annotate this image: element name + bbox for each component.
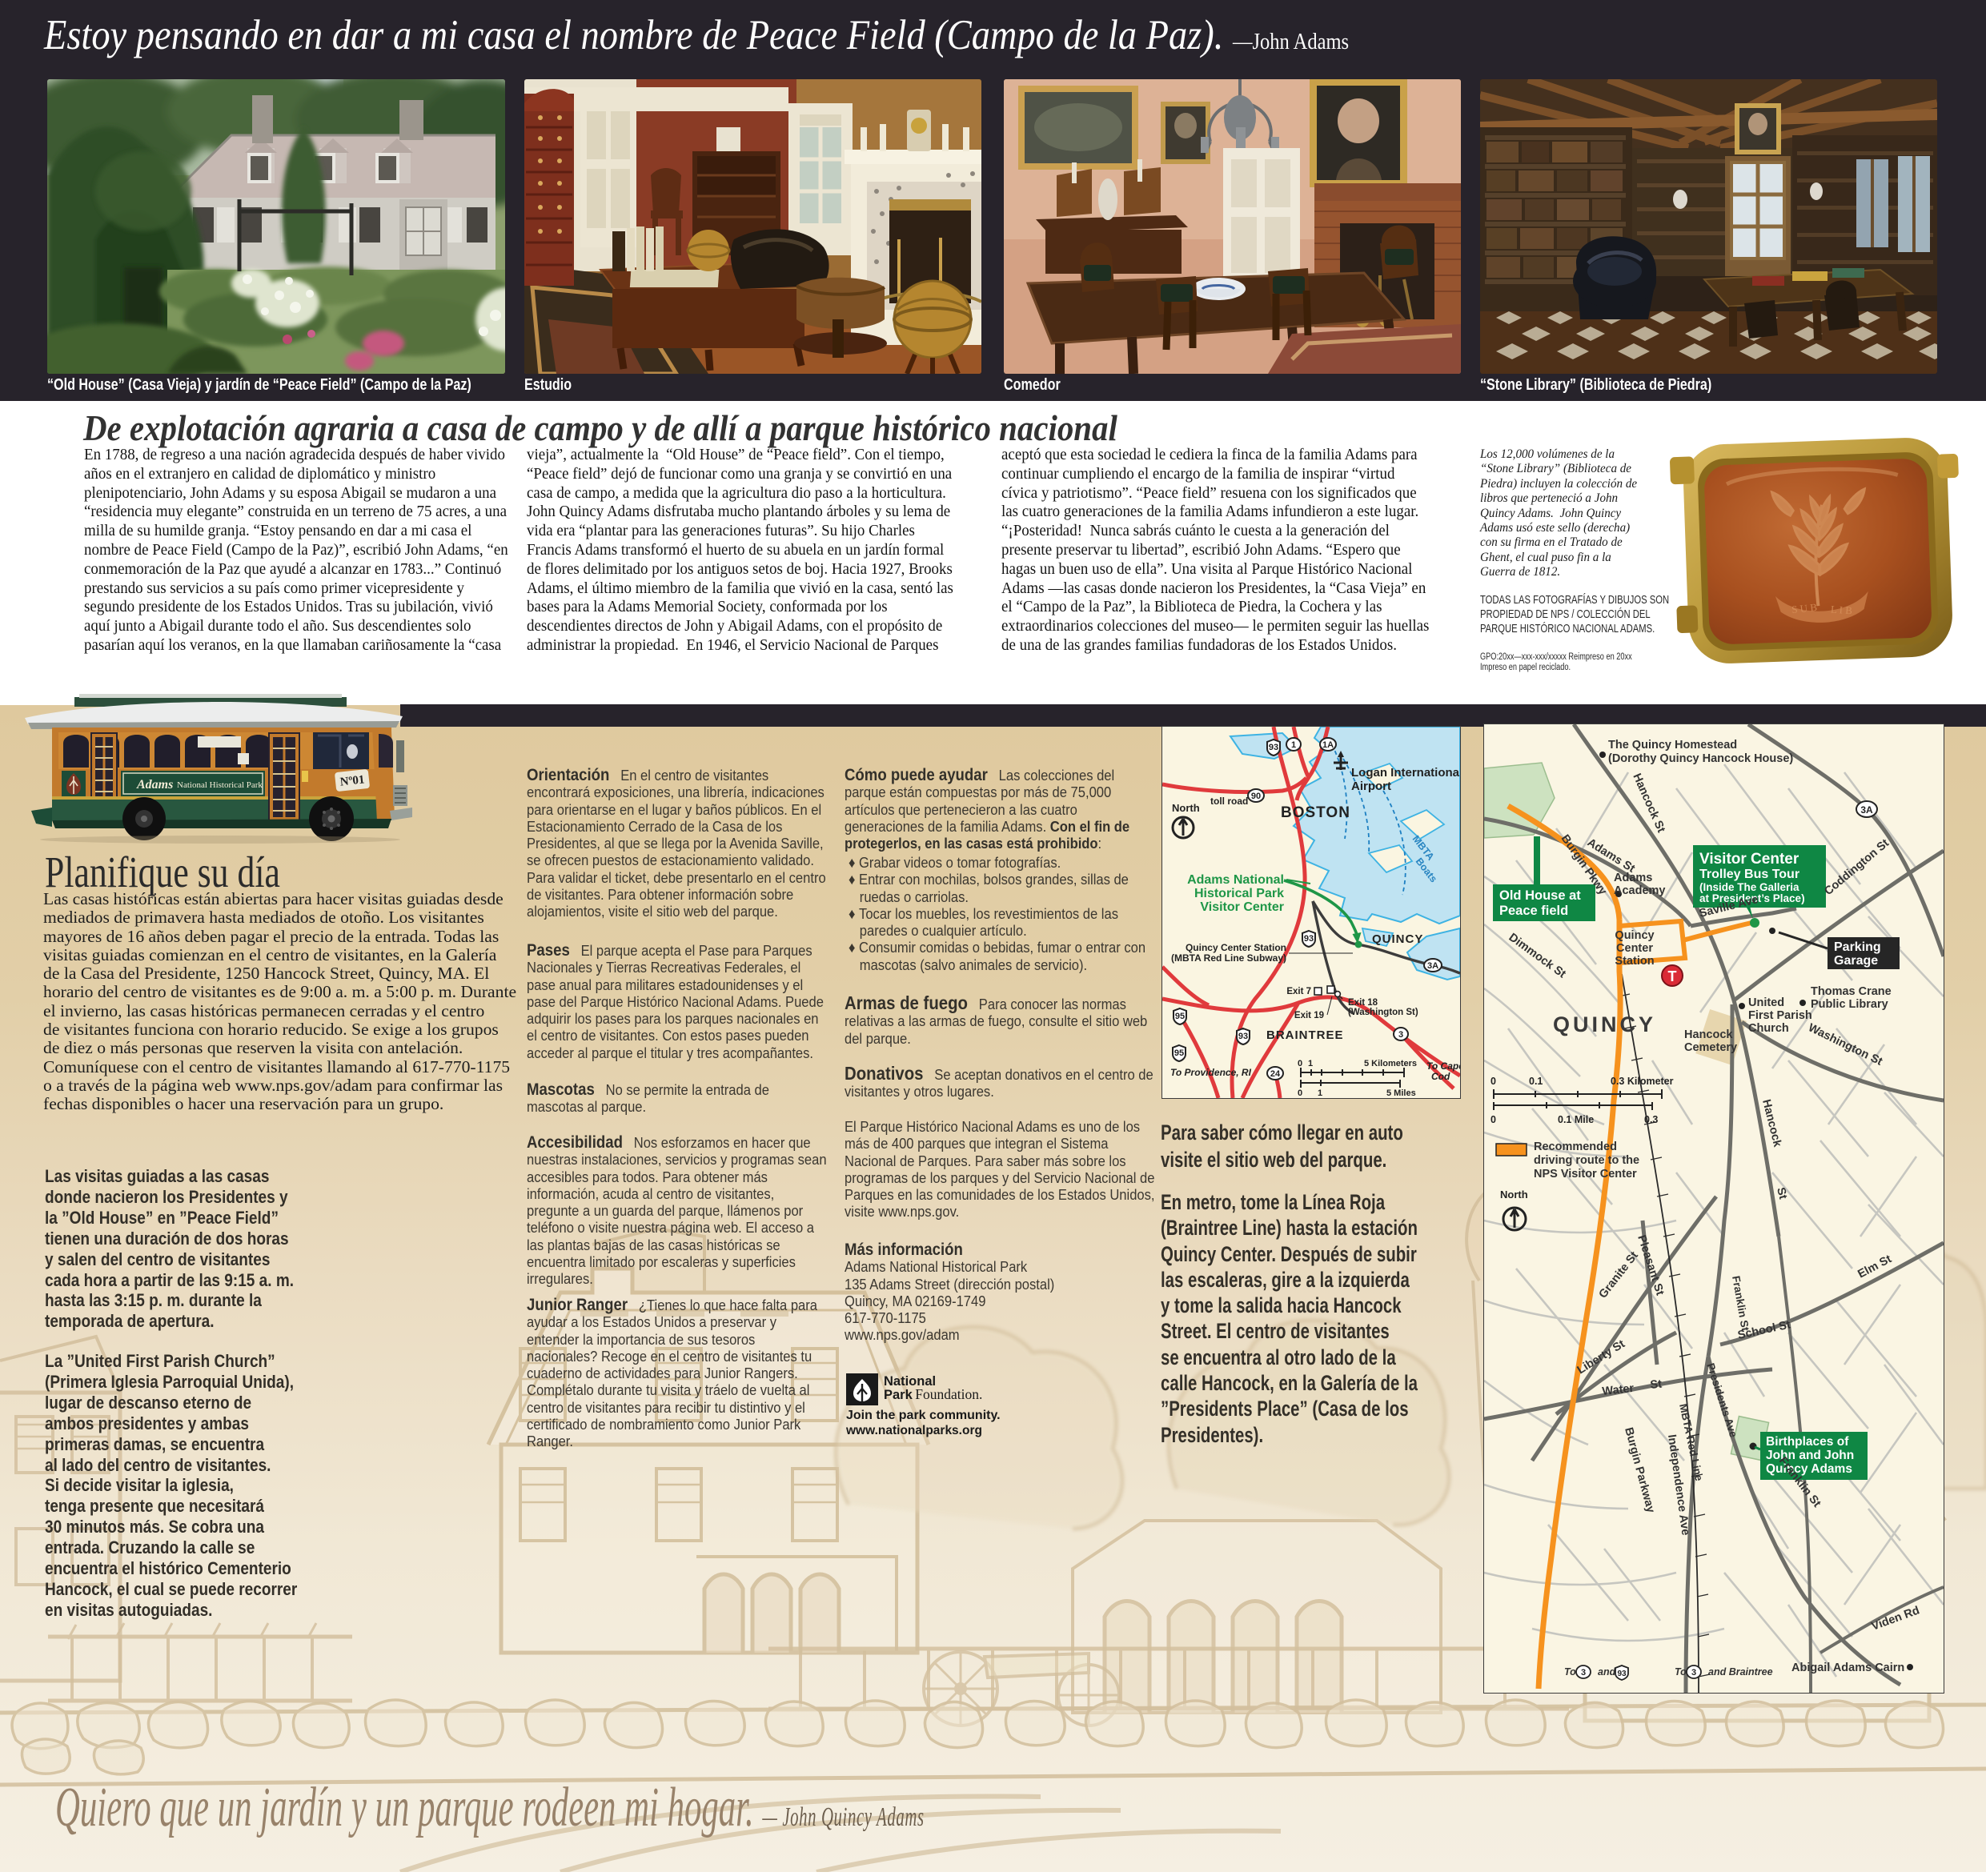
svg-text:First Parish: First Parish [1748, 1009, 1812, 1022]
svg-text:1: 1 [1318, 1088, 1322, 1098]
svg-text:Garage: Garage [1834, 954, 1878, 968]
svg-text:T: T [1668, 968, 1677, 984]
svg-text:93: 93 [1617, 1670, 1627, 1678]
svg-text:Trolley Bus Tour: Trolley Bus Tour [1699, 868, 1799, 881]
svg-text:93: 93 [1238, 1032, 1248, 1041]
svg-text:Exit 18: Exit 18 [1348, 998, 1378, 1008]
svg-text:BOSTON: BOSTON [1281, 804, 1350, 821]
svg-text:Cemetery: Cemetery [1684, 1041, 1737, 1054]
svg-text:L I B: L I B [1831, 603, 1853, 617]
svg-text:and Braintree: and Braintree [1708, 1666, 1773, 1678]
svg-text:The Quincy Homestead: The Quincy Homestead [1608, 739, 1737, 752]
svg-text:Logan International: Logan International [1351, 766, 1460, 780]
svg-text:5 Miles: 5 Miles [1386, 1088, 1416, 1098]
svg-text:To Providence, RI: To Providence, RI [1170, 1067, 1252, 1078]
svg-text:North: North [1500, 1189, 1528, 1201]
svg-text:NPS Visitor Center: NPS Visitor Center [1534, 1168, 1637, 1181]
svg-text:0: 0 [1298, 1059, 1302, 1068]
svg-text:0.3 Kilometer: 0.3 Kilometer [1611, 1076, 1674, 1087]
svg-text:Visitor Center: Visitor Center [1699, 851, 1799, 868]
svg-text:24: 24 [1270, 1069, 1281, 1079]
svg-text:(Inside The Galleria: (Inside The Galleria [1699, 881, 1799, 893]
svg-text:Public Library: Public Library [1811, 998, 1888, 1011]
svg-text:Nº01: Nº01 [339, 773, 365, 788]
svg-text:90: 90 [1251, 792, 1261, 801]
svg-text:0.1: 0.1 [1529, 1076, 1543, 1087]
svg-text:Park Foundation.: Park Foundation. [884, 1386, 982, 1402]
svg-text:Airport: Airport [1351, 780, 1391, 793]
svg-text:QUINCY: QUINCY [1553, 1012, 1656, 1036]
svg-text:93: 93 [1269, 743, 1278, 752]
svg-text:0.3: 0.3 [1644, 1114, 1658, 1125]
svg-text:Join the park community.: Join the park community. [846, 1409, 1001, 1422]
svg-text:3: 3 [1398, 1030, 1403, 1040]
svg-text:1: 1 [1291, 740, 1296, 750]
svg-text:Station: Station [1615, 955, 1654, 968]
svg-text:0: 0 [1298, 1088, 1302, 1098]
svg-text:3A: 3A [1860, 804, 1873, 816]
svg-text:Adams: Adams [136, 778, 173, 792]
svg-text:North: North [1172, 802, 1200, 814]
svg-text:95: 95 [1174, 1048, 1184, 1058]
svg-text:0: 0 [1491, 1076, 1496, 1087]
svg-text:To: To [1675, 1666, 1687, 1678]
svg-text:Church: Church [1748, 1022, 1789, 1035]
svg-text:3: 3 [1691, 1668, 1696, 1678]
svg-text:To Cape: To Cape [1426, 1060, 1460, 1072]
svg-text:Exit 7: Exit 7 [1286, 987, 1311, 996]
svg-text:Adams National: Adams National [1187, 873, 1284, 887]
svg-text:Visitor Center: Visitor Center [1200, 900, 1284, 914]
svg-text:0: 0 [1491, 1114, 1496, 1125]
svg-text:1A: 1A [1322, 740, 1334, 750]
svg-text:0.1 Mile: 0.1 Mile [1558, 1114, 1594, 1125]
svg-text:93: 93 [1304, 934, 1314, 944]
svg-text:Cod: Cod [1431, 1071, 1450, 1082]
svg-text:3A: 3A [1427, 961, 1438, 971]
svg-text:1: 1 [1308, 1059, 1313, 1068]
svg-text:Abigail Adams Cairn: Abigail Adams Cairn [1791, 1662, 1904, 1674]
svg-text:Center: Center [1616, 942, 1653, 955]
svg-text:Birthplaces of: Birthplaces of [1766, 1435, 1849, 1449]
svg-text:Old House at: Old House at [1499, 888, 1581, 903]
svg-text:Adams: Adams [1614, 872, 1652, 884]
svg-text:Quincy Center Station: Quincy Center Station [1186, 942, 1286, 953]
svg-text:Recommended: Recommended [1534, 1140, 1617, 1153]
svg-text:Quincy: Quincy [1615, 929, 1654, 942]
svg-text:95: 95 [1175, 1012, 1185, 1021]
svg-text:Hancock: Hancock [1684, 1028, 1733, 1041]
svg-text:and: and [1598, 1666, 1616, 1678]
svg-text:5 Kilometers: 5 Kilometers [1364, 1059, 1417, 1068]
svg-text:National Historical Park: National Historical Park [177, 780, 263, 790]
svg-text:driving route to the: driving route to the [1534, 1154, 1639, 1167]
svg-text:QUINCY: QUINCY [1372, 932, 1423, 946]
svg-text:BRAINTREE: BRAINTREE [1266, 1028, 1344, 1042]
svg-text:Peace field: Peace field [1499, 904, 1568, 918]
svg-text:To: To [1564, 1666, 1576, 1678]
svg-text:(Dorothy Quincy Hancock House): (Dorothy Quincy Hancock House) [1608, 752, 1793, 765]
svg-text:St: St [1650, 1378, 1663, 1392]
svg-text:Thomas Crane: Thomas Crane [1811, 985, 1892, 998]
svg-text:3: 3 [1581, 1668, 1586, 1678]
svg-text:United: United [1748, 996, 1784, 1009]
svg-text:www.nationalparks.org: www.nationalparks.org [846, 1424, 982, 1437]
svg-text:toll road: toll road [1210, 796, 1248, 807]
svg-text:Historical Park: Historical Park [1194, 887, 1284, 900]
svg-text:(Washington St): (Washington St) [1348, 1008, 1418, 1017]
svg-text:(MBTA Red Line Subway): (MBTA Red Line Subway) [1171, 952, 1286, 964]
svg-text:Parking: Parking [1834, 940, 1881, 954]
svg-text:Exit 19: Exit 19 [1294, 1011, 1324, 1020]
svg-text:Academy: Academy [1614, 884, 1665, 897]
